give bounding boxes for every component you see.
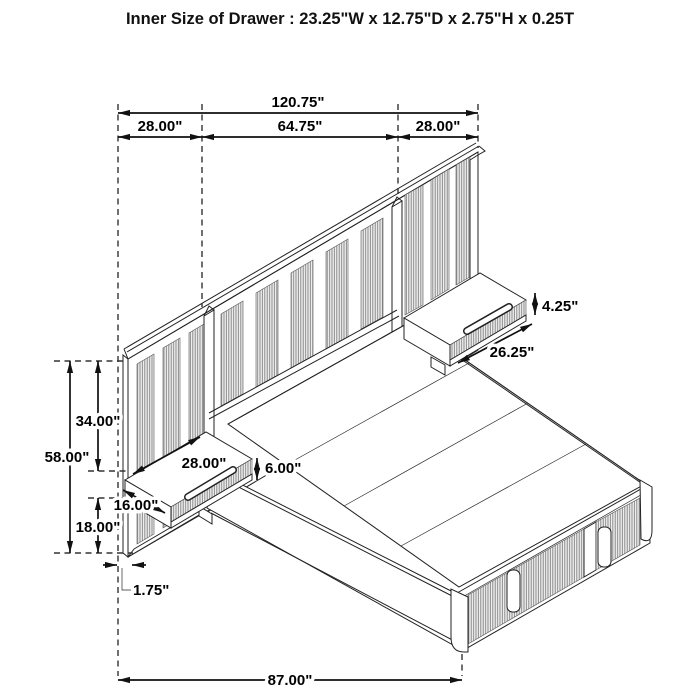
- label-right-drawer-height: 4.25": [542, 298, 578, 315]
- bed-corner-post-front: [451, 589, 468, 652]
- label-nightstand-height: 6.00": [265, 460, 301, 477]
- furniture-dimension-diagram: 120.75" 28.00" 64.75" 28.00" 58.00" 34.0…: [0, 0, 700, 700]
- dimension-bed-length: 87.00": [118, 672, 462, 689]
- footboard-drawer-handle-left: [507, 570, 520, 612]
- label-nightstand-depth: 16.00": [114, 497, 159, 514]
- dimension-overall-width: 120.75": [118, 94, 478, 113]
- label-center-section-width: 64.75": [278, 118, 323, 135]
- label-right-section-width: 28.00": [416, 118, 461, 135]
- label-bed-length: 87.00": [268, 672, 313, 689]
- footboard-drawer-handle-right: [598, 527, 611, 567]
- label-left-section-width: 28.00": [138, 118, 183, 135]
- diagram-page: 120.75" 28.00" 64.75" 28.00" 58.00" 34.0…: [0, 0, 700, 700]
- dimension-section-widths: 28.00" 64.75" 28.00": [118, 118, 478, 137]
- label-overall-width: 120.75": [272, 94, 325, 111]
- bed-corner-post-right: [640, 480, 652, 541]
- dimension-right-drawer-height: 4.25": [535, 293, 578, 315]
- label-right-nightstand-length: 26.25": [490, 344, 535, 361]
- diagram-title: Inner Size of Drawer : 23.25"W x 12.75"D…: [126, 10, 574, 28]
- label-nightstand-width: 28.00": [182, 455, 227, 472]
- headboard-left-edge: [123, 355, 128, 557]
- label-panel-thickness: 1.75": [133, 582, 169, 599]
- label-panel-upper-height: 34.00": [76, 413, 121, 430]
- label-panel-height: 58.00": [45, 449, 90, 466]
- dimension-panel-thickness: 1.75": [103, 565, 169, 599]
- label-panel-lower-height: 18.00": [76, 519, 121, 536]
